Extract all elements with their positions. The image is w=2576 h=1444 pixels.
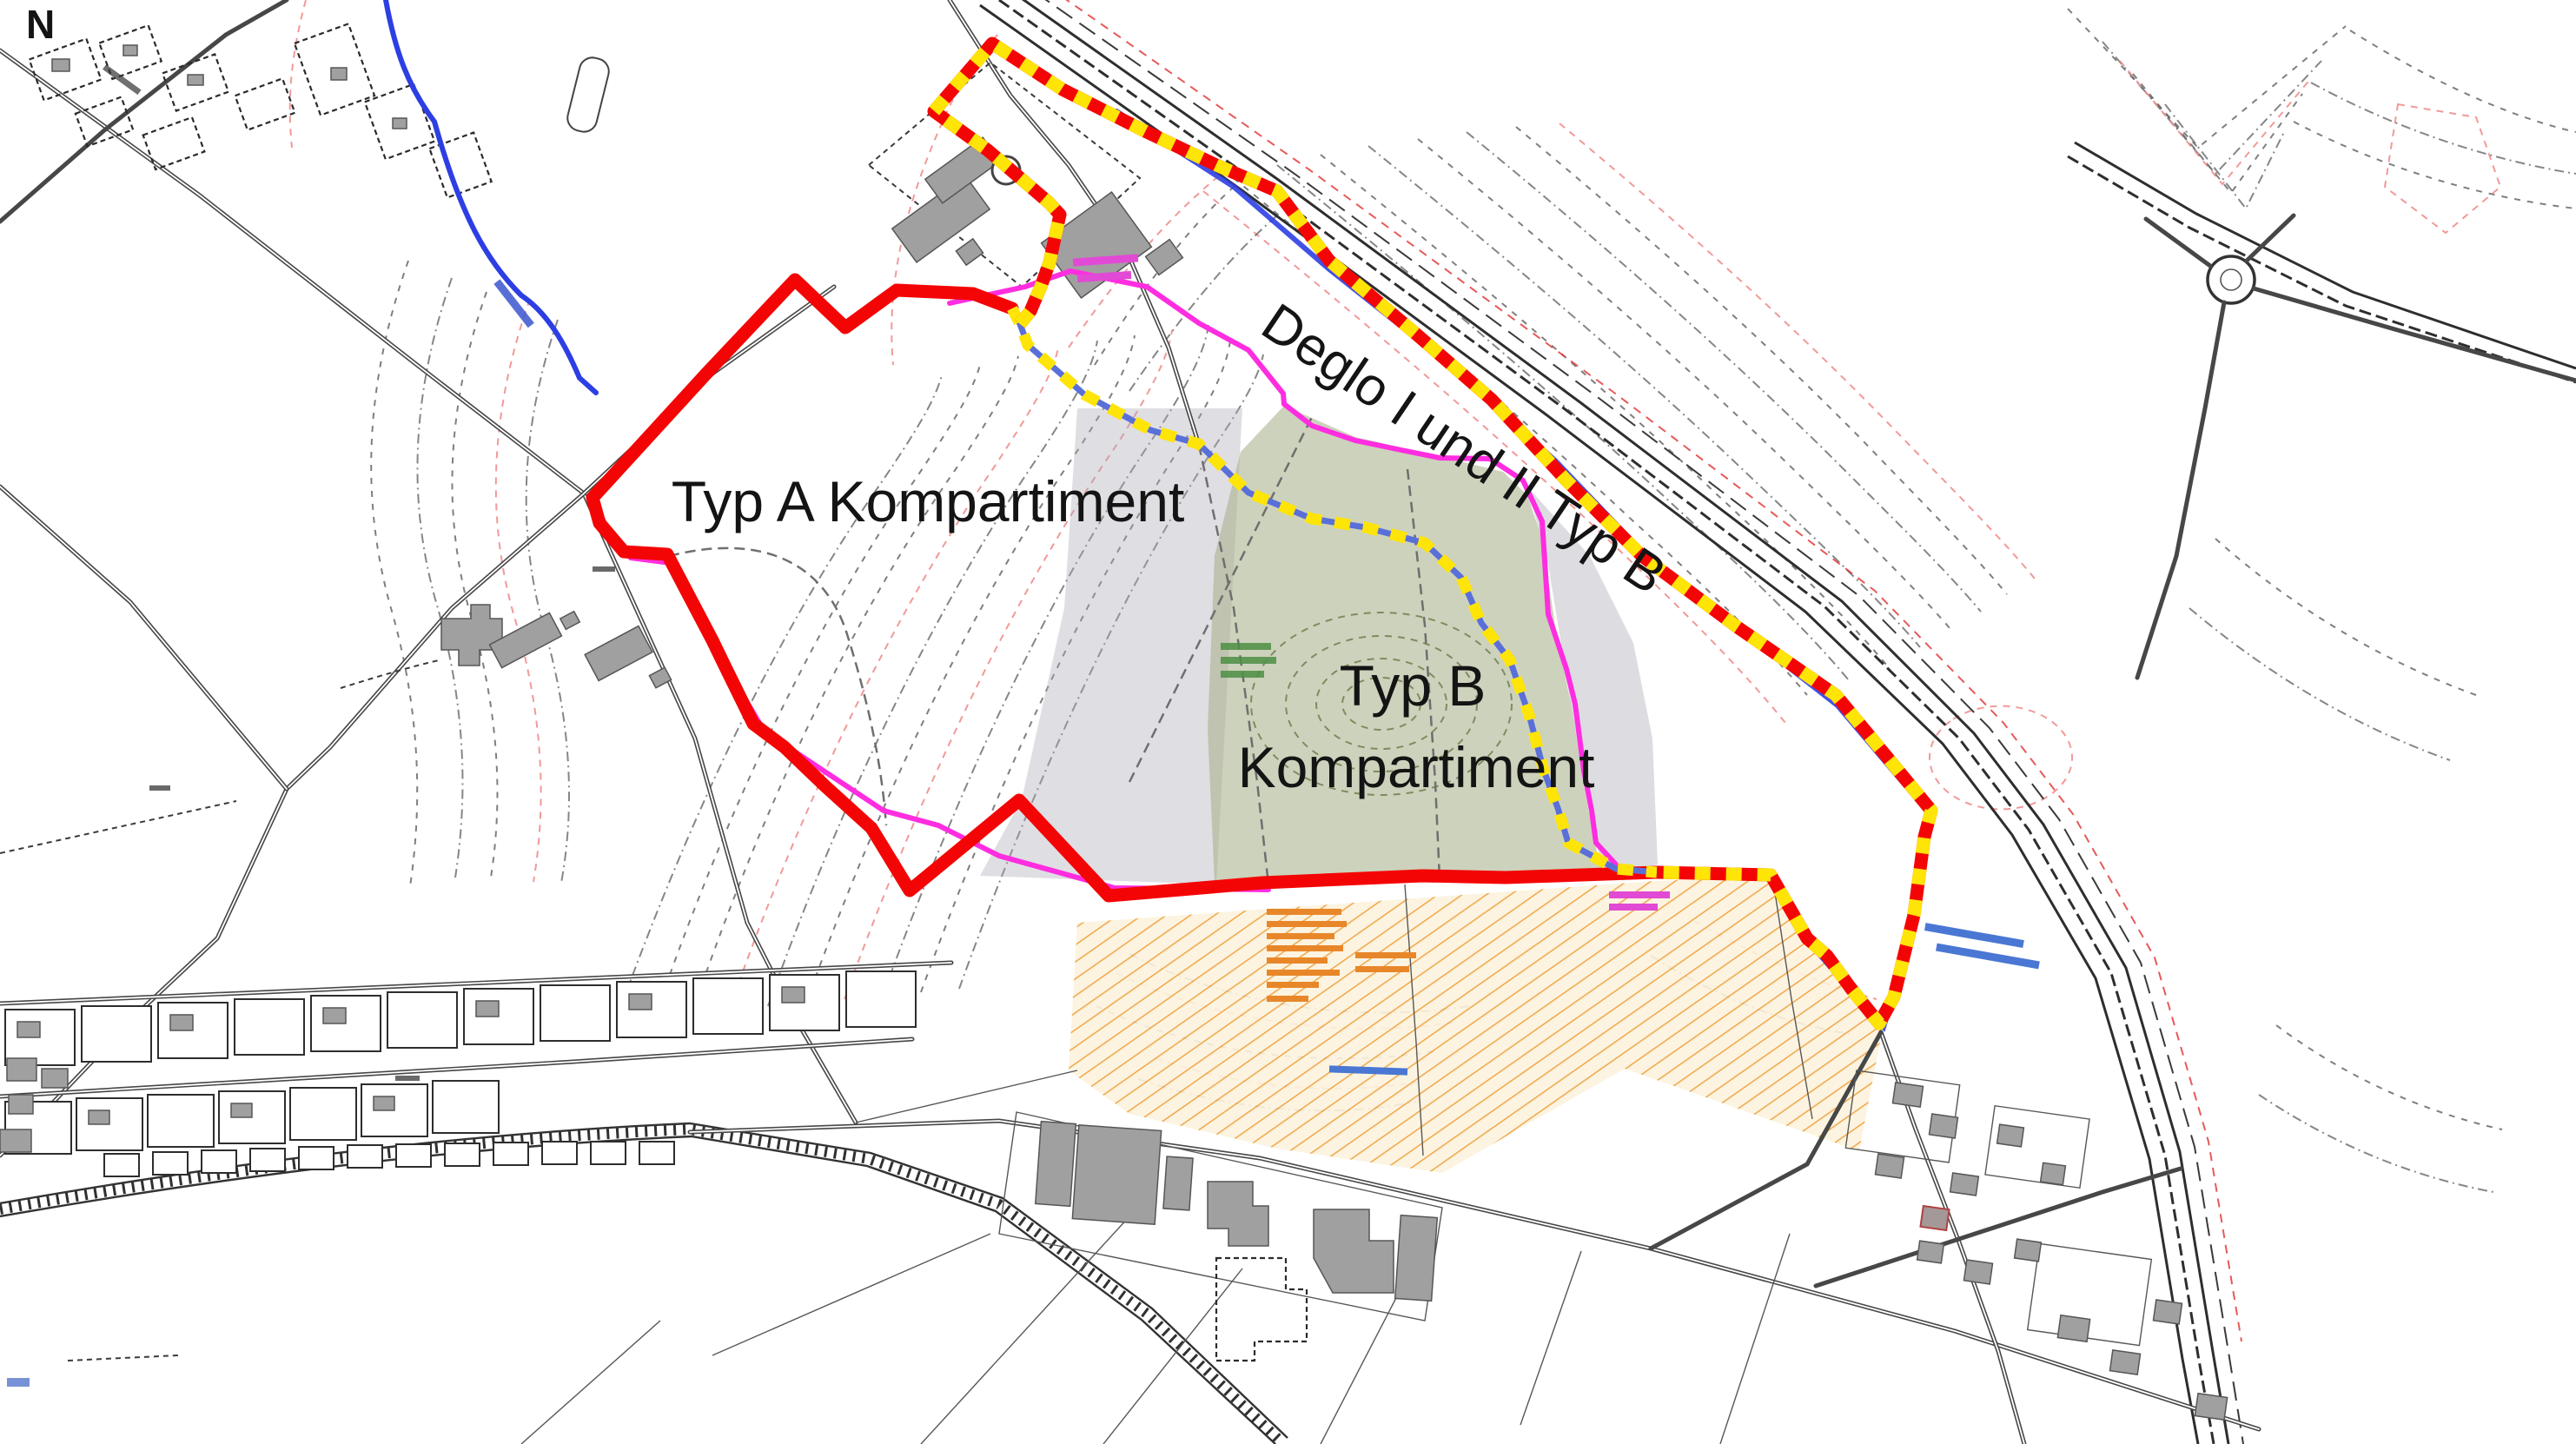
north-label: N — [26, 2, 55, 47]
contour-lines-west-slope — [290, 0, 569, 886]
illegible-street-label — [103, 64, 142, 95]
contour-lines-right-and-southeast — [1930, 539, 2502, 1192]
contour-lines-top-right — [2068, 9, 2576, 233]
residential-area-northwest — [30, 23, 612, 197]
map-canvas: N Typ A Kompartiment Typ B Kompartiment … — [0, 0, 2576, 1444]
site-plan-map: N Typ A Kompartiment Typ B Kompartiment … — [0, 0, 2576, 1444]
residential-area-southwest — [0, 971, 916, 1387]
illegible-label — [7, 1378, 30, 1387]
zone-hatched-south — [1069, 876, 1883, 1173]
typ-b-label-line2: Kompartiment — [1238, 735, 1595, 799]
illegible-magenta-label — [1609, 891, 1670, 898]
roundabout — [2137, 215, 2576, 678]
typ-b-label-line1: Typ B — [1340, 653, 1487, 718]
typ-a-label: Typ A Kompartiment — [672, 469, 1185, 533]
illegible-magenta-label — [1609, 904, 1658, 911]
stream-blue-west — [386, 0, 596, 393]
